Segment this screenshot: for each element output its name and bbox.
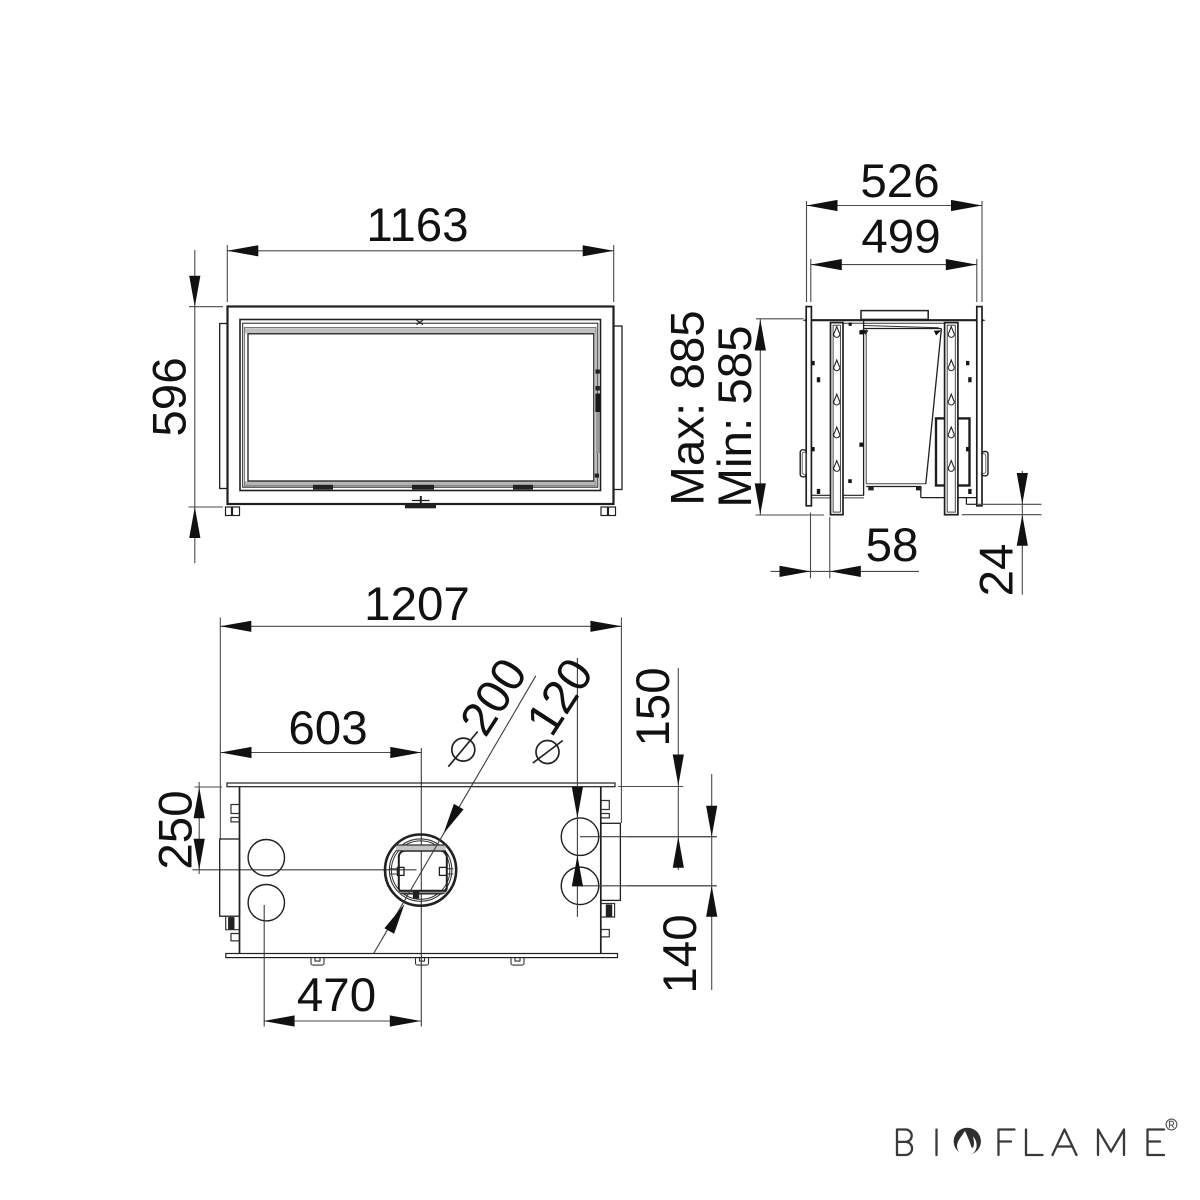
svg-text:24: 24: [971, 544, 1024, 597]
svg-text:Min: 585: Min: 585: [709, 325, 762, 507]
svg-text:1163: 1163: [366, 199, 468, 252]
svg-text:603: 603: [288, 702, 367, 755]
svg-text:58: 58: [866, 519, 919, 572]
svg-text:499: 499: [861, 211, 940, 264]
svg-text:140: 140: [654, 914, 707, 993]
svg-text:526: 526: [860, 155, 939, 208]
svg-text:596: 596: [144, 357, 197, 436]
svg-text:150: 150: [627, 667, 680, 746]
svg-text:470: 470: [297, 969, 376, 1022]
svg-text:250: 250: [150, 790, 203, 869]
svg-text:Max: 885: Max: 885: [662, 310, 715, 505]
svg-text:1207: 1207: [364, 578, 470, 631]
